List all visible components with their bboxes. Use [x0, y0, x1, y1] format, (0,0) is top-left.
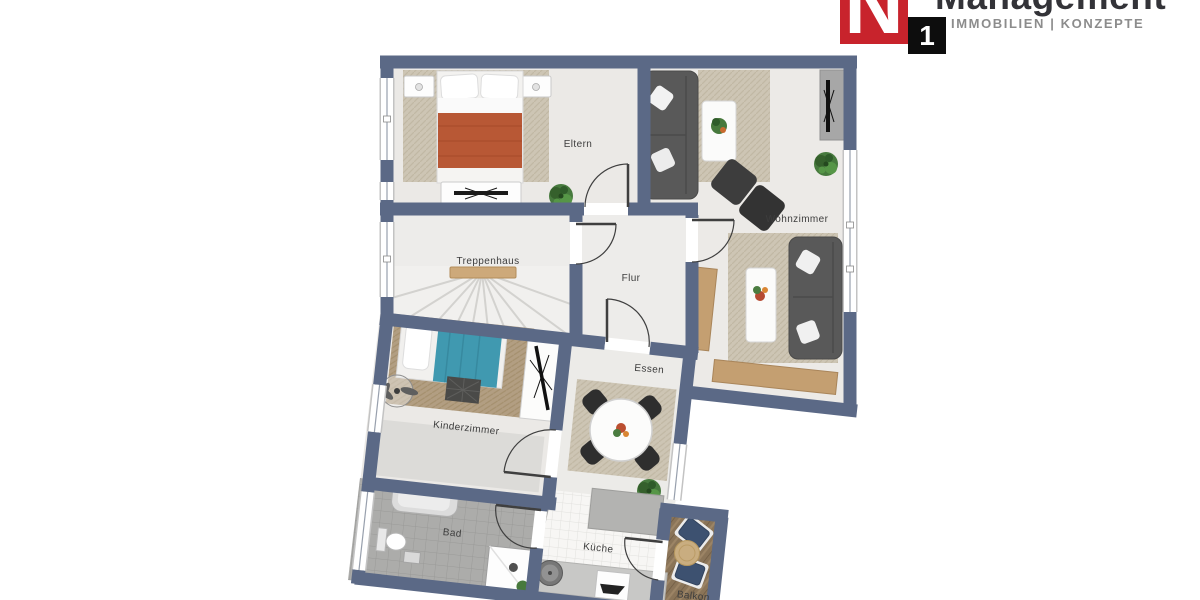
double-bed — [437, 71, 523, 183]
stove — [595, 570, 631, 600]
coffee-table-2 — [746, 268, 776, 342]
doormat — [445, 376, 481, 403]
sofa-2 — [789, 237, 842, 359]
plant — [814, 152, 838, 176]
round-rug — [675, 541, 700, 566]
counter-top — [588, 488, 664, 535]
room-label-eltern: Eltern — [564, 139, 593, 150]
dresser-tv — [441, 182, 521, 205]
stair-handrail — [450, 267, 516, 278]
corner-sofa — [644, 71, 698, 199]
room-label-bad: Bad — [442, 527, 462, 540]
room-label-wohnzimmer: Wohnzimmer — [766, 214, 829, 225]
coffee-table — [702, 101, 736, 161]
floorplan: Eltern Wohnzimmer Treppenhaus Flur Essen… — [0, 0, 1200, 600]
washbasin — [403, 551, 420, 564]
tv-sideboard — [820, 70, 844, 140]
room-label-treppenhaus: Treppenhaus — [457, 256, 520, 267]
dining-table — [590, 399, 652, 461]
room-label-flur: Flur — [622, 273, 641, 284]
